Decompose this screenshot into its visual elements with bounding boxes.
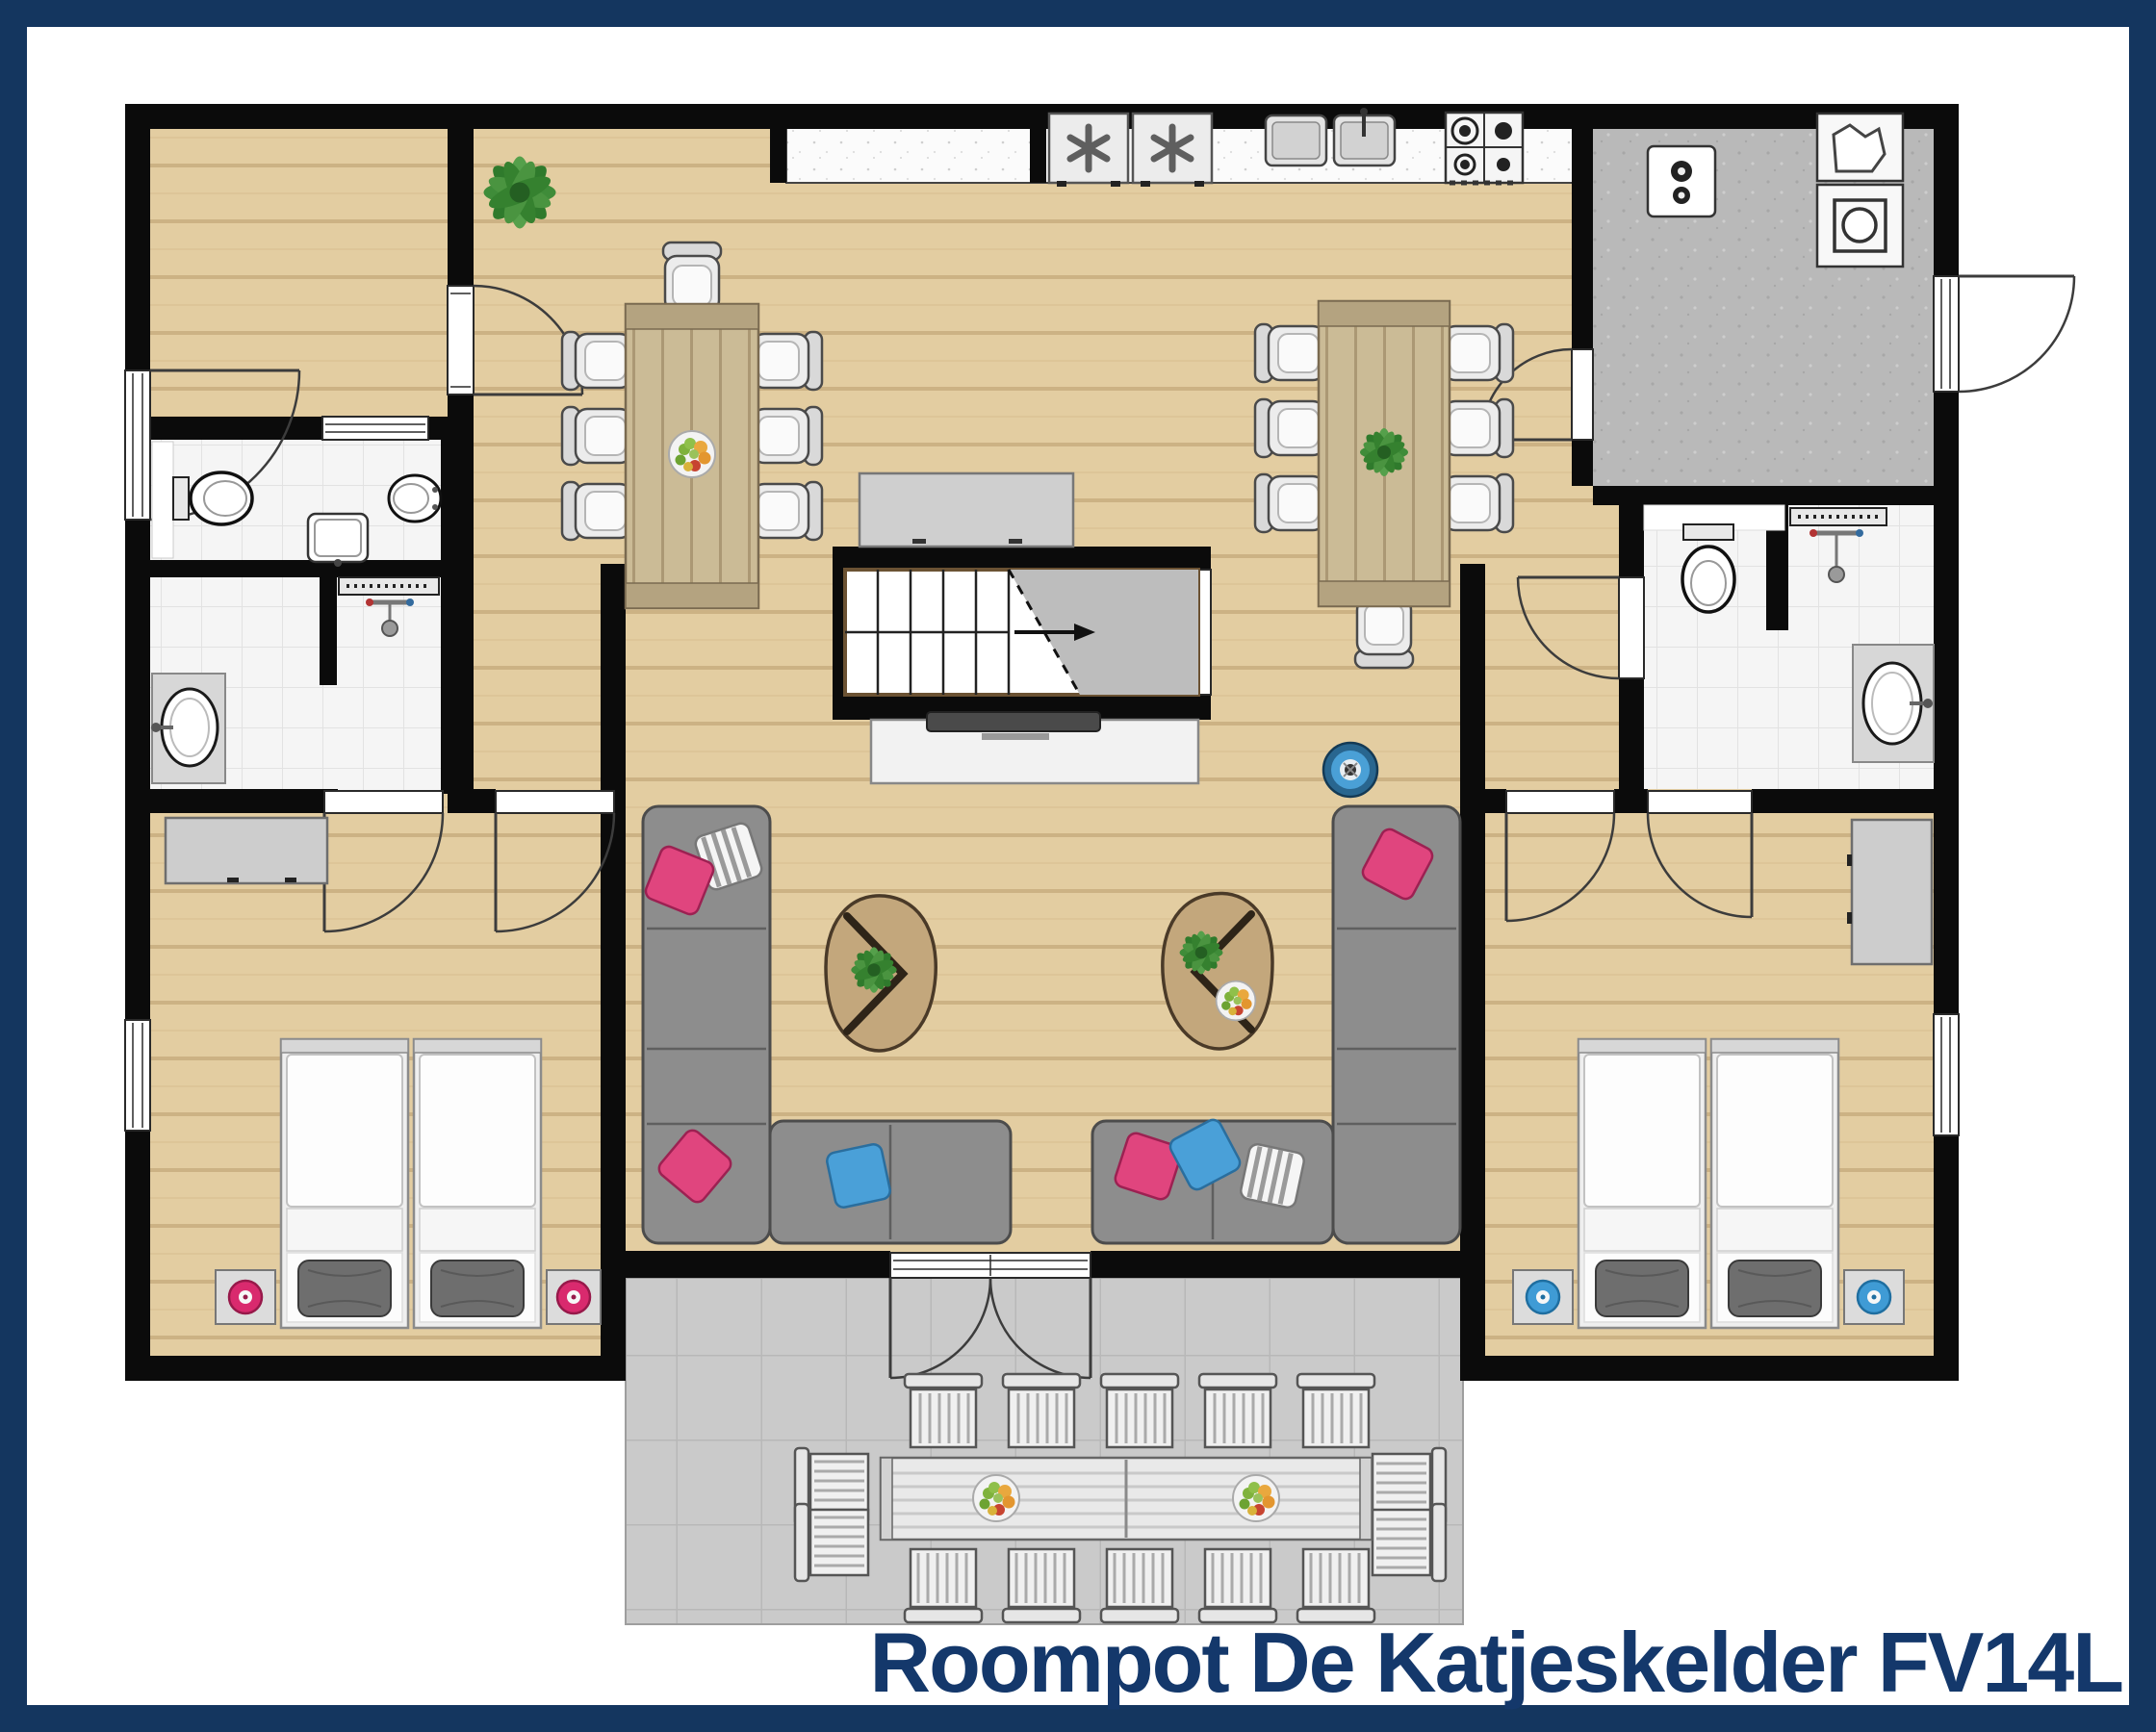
floorplan-page: Roompot De Katjeskelder FV14L (0, 0, 2156, 1732)
single-bed-R2 (1711, 1039, 1838, 1328)
wall-kitchen-stub-1 (770, 104, 786, 183)
toilet-left (173, 472, 252, 524)
wall-bedroomR-top-b (1614, 789, 1648, 813)
wall-left (125, 104, 150, 1381)
wall-bath-divider (125, 560, 441, 577)
wall-bathR-left-b (1619, 678, 1644, 789)
tv-icon (927, 712, 1100, 731)
coffee-table-left (826, 896, 936, 1051)
wall-bathR-left-a (1619, 505, 1644, 577)
wall-toiletroom-top-a (125, 417, 322, 440)
utility-room-floor (1593, 129, 1934, 486)
partition-shower-left (320, 574, 337, 685)
wall-bottom-right-wing (1460, 1356, 1959, 1381)
door-toilet-room-left (322, 417, 428, 440)
washing-machine (1817, 185, 1903, 267)
fridge-freezer-1 (1049, 114, 1128, 187)
fruit-bowl-coffee (1217, 981, 1256, 1021)
washbasin-toilet-room (308, 514, 368, 567)
wall-bedroomR-top-c (1752, 789, 1959, 813)
single-bed-R1 (1578, 1039, 1706, 1328)
wardrobe-left (166, 818, 327, 883)
wall-hall-right-top (448, 104, 474, 286)
wall-kitchen-stub-2 (1030, 104, 1046, 183)
wall-boiler (1648, 146, 1715, 216)
fruit-bowl-terrace-2 (1233, 1475, 1279, 1521)
wall-center-bottom-a (626, 1251, 890, 1278)
gas-hob (1446, 113, 1523, 183)
single-bed-L1 (281, 1039, 408, 1328)
fruit-bowl-terrace-1 (973, 1475, 1019, 1521)
wall-bedroomR-top-a (1485, 789, 1506, 813)
bidet-left (389, 475, 441, 522)
wall-bedroomL-top-b (456, 789, 496, 813)
nightstand-right-2 (1844, 1270, 1904, 1324)
floor-plan: Roompot De Katjeskelder FV14L (0, 0, 2156, 1732)
wall-C (601, 564, 626, 1381)
nightstand-left-1 (216, 1270, 275, 1324)
plant-entry (484, 157, 556, 229)
pink-slippers-2 (557, 1281, 590, 1313)
tv-cabinet (871, 712, 1198, 783)
wall-bottom-left-wing (125, 1356, 626, 1381)
toilet-right (1682, 524, 1734, 612)
wall-bedroomL-top-a (125, 789, 338, 813)
nightstand-left-2 (547, 1270, 601, 1324)
wall-bath-right (441, 440, 462, 794)
wall-D (1460, 564, 1485, 1381)
outdoor-table (881, 1458, 1372, 1540)
plant-coffee-right (1180, 931, 1223, 975)
pink-slippers-1 (229, 1281, 262, 1313)
window-bedroom-right (1934, 1014, 1959, 1135)
fruit-bowl (669, 431, 715, 477)
round-blue-stool (1323, 743, 1377, 797)
exterior-door-utility (1934, 276, 2074, 392)
wall-utility-bottom (1593, 486, 1959, 505)
nightstand-right-1 (1513, 1270, 1573, 1324)
wall-stairs-top (833, 547, 1211, 570)
washbasin-right (1853, 645, 1934, 762)
plan-title: Roompot De Katjeskelder FV14L (870, 1615, 2123, 1710)
blue-slippers-2 (1858, 1281, 1890, 1313)
plant-coffee-left (851, 947, 897, 993)
coffee-table-right (1163, 893, 1272, 1049)
staircase (845, 570, 1198, 695)
wall-toiletroom-top-b (428, 417, 474, 440)
single-bed-L2 (414, 1039, 541, 1328)
sideboard (860, 473, 1073, 547)
utility-sink (1817, 114, 1903, 181)
window-bedroom-left (125, 1020, 150, 1131)
wall-center-bottom-b (1091, 1251, 1460, 1278)
fridge-freezer-2 (1133, 114, 1212, 187)
wardrobe-right (1847, 820, 1932, 964)
plant-dining (1360, 428, 1408, 476)
blue-slippers-1 (1527, 1281, 1559, 1313)
washbasin-shower-room (151, 674, 225, 783)
